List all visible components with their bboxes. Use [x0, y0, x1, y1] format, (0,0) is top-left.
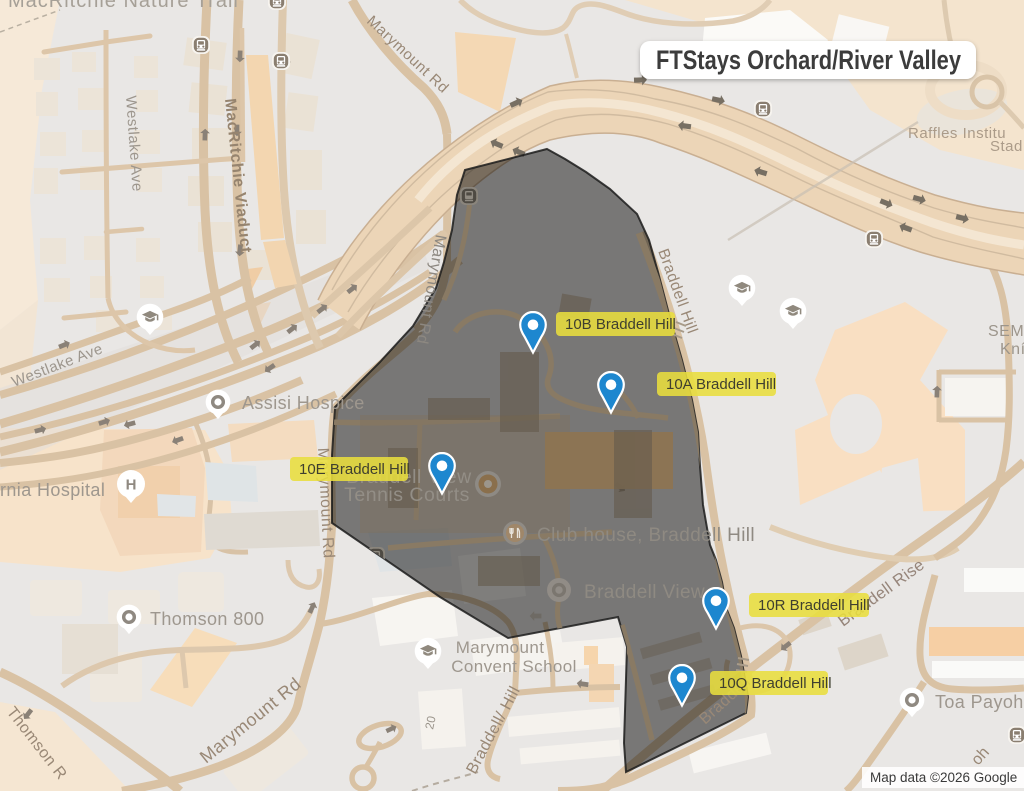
svg-text:rnia Hospital: rnia Hospital: [0, 480, 105, 500]
svg-text:10A Braddell Hill: 10A Braddell Hill: [666, 376, 776, 393]
svg-text:Thomson 800: Thomson 800: [150, 609, 264, 629]
svg-text:Club house, Braddell Hill: Club house, Braddell Hill: [537, 525, 755, 546]
svg-text:Assisi Hospice: Assisi Hospice: [242, 393, 365, 413]
svg-text:FTStays Orchard/River Valley: FTStays Orchard/River Valley: [656, 45, 961, 75]
svg-text:Convent School: Convent School: [451, 657, 577, 676]
svg-text:SEM: SEM: [988, 323, 1024, 340]
svg-text:10B Braddell Hill: 10B Braddell Hill: [565, 316, 676, 333]
svg-text:Tennis Courts: Tennis Courts: [344, 484, 470, 506]
svg-text:10E Braddell Hill: 10E Braddell Hill: [299, 461, 410, 478]
svg-text:Stad: Stad: [990, 138, 1023, 155]
svg-text:Toa Payoh: Toa Payoh: [935, 692, 1024, 712]
svg-text:Map data ©2026 Google: Map data ©2026 Google: [870, 770, 1017, 785]
svg-text:10Q Braddell Hill: 10Q Braddell Hill: [719, 675, 832, 692]
svg-text:MacRitchie Nature Trail: MacRitchie Nature Trail: [8, 0, 239, 12]
svg-text:Braddell View: Braddell View: [584, 582, 705, 603]
svg-text:H: H: [126, 477, 137, 494]
svg-text:Marymount: Marymount: [456, 638, 545, 657]
svg-text:10R Braddell Hill: 10R Braddell Hill: [758, 597, 870, 614]
svg-text:Kní: Kní: [1000, 341, 1024, 358]
